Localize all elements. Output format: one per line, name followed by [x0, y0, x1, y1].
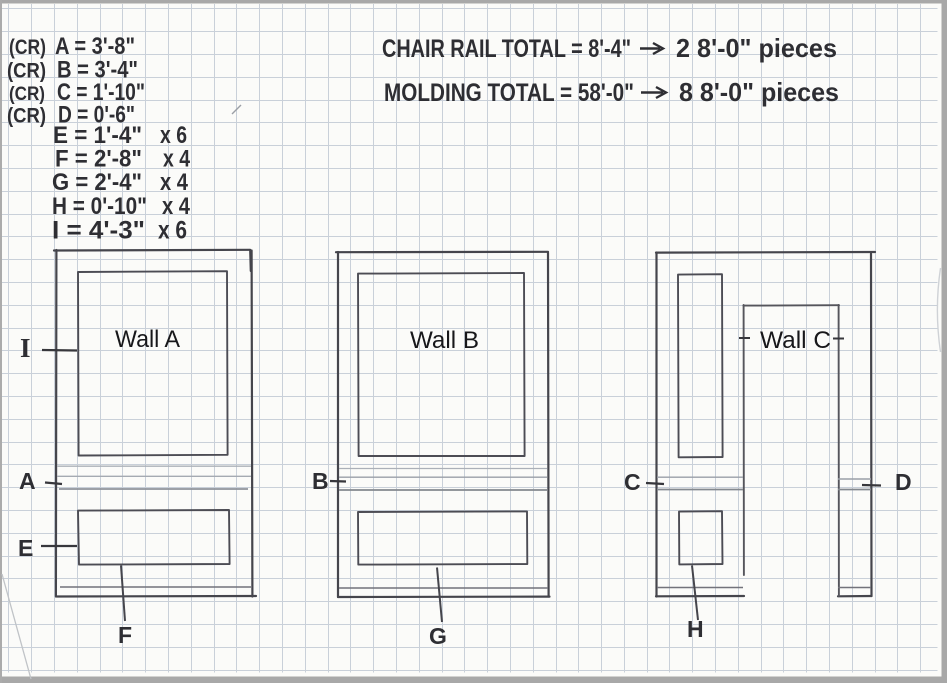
svg-text:F: F	[118, 622, 132, 648]
svg-text:(CR): (CR)	[9, 84, 45, 105]
svg-text:8 8'-0" pieces: 8 8'-0" pieces	[679, 77, 839, 107]
svg-text:Wall A: Wall A	[115, 326, 180, 353]
svg-text:I = 4'-3": I = 4'-3"	[52, 217, 145, 245]
svg-text:(CR): (CR)	[7, 105, 46, 128]
svg-text:(CR): (CR)	[7, 60, 46, 83]
svg-text:C: C	[624, 469, 641, 495]
svg-text:E: E	[18, 535, 33, 561]
svg-text:CHAIR RAIL TOTAL = 8'-4": CHAIR RAIL TOTAL = 8'-4"	[382, 35, 631, 63]
svg-text:H: H	[687, 616, 704, 642]
svg-text:I: I	[20, 333, 31, 363]
svg-text:2 8'-0" pieces: 2 8'-0" pieces	[676, 33, 837, 63]
svg-text:G = 2'-4": G = 2'-4"	[52, 169, 142, 196]
svg-text:Wall B: Wall B	[410, 327, 479, 354]
svg-text:A: A	[19, 468, 36, 494]
svg-text:(CR): (CR)	[9, 36, 46, 59]
svg-text:B: B	[312, 468, 329, 494]
svg-text:D: D	[895, 469, 912, 495]
svg-text:G: G	[429, 623, 447, 649]
svg-text:MOLDING TOTAL = 58'-0": MOLDING TOTAL = 58'-0"	[384, 79, 634, 107]
svg-text:Wall C: Wall C	[760, 327, 831, 354]
svg-text:x 4: x 4	[160, 169, 189, 196]
svg-text:x 6: x 6	[158, 217, 187, 245]
